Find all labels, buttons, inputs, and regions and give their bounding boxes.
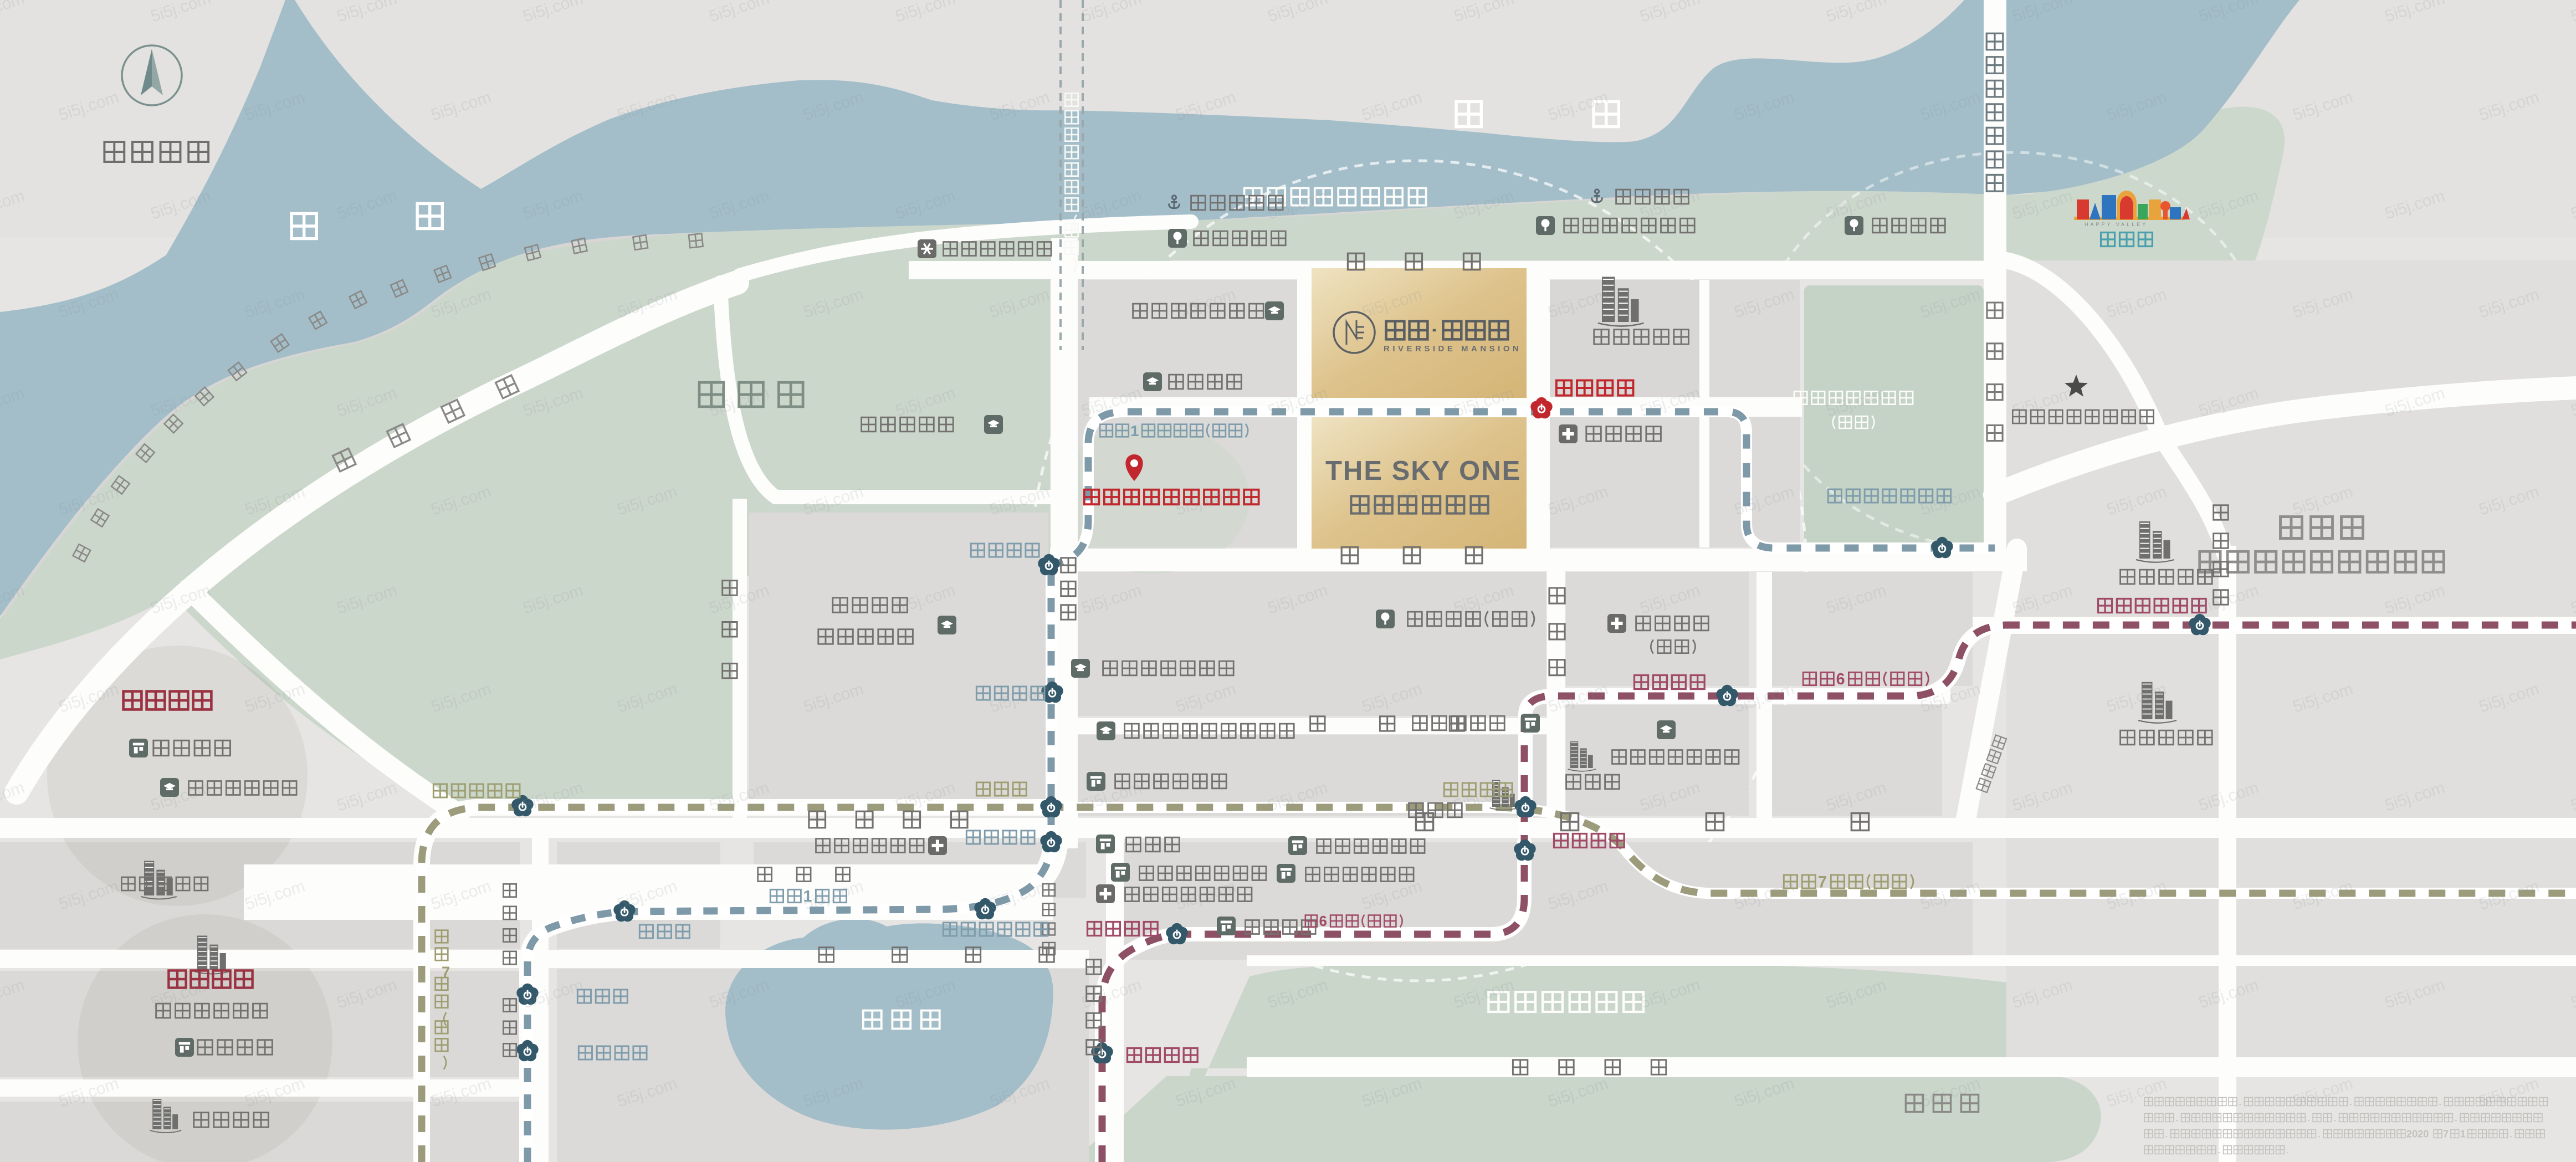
- svg-text:7: 7: [2443, 1129, 2449, 1140]
- svg-text:1: 1: [2460, 1129, 2466, 1140]
- svg-text:THE SKY ONE: THE SKY ONE: [1325, 456, 1521, 486]
- svg-text:6: 6: [1319, 914, 1327, 929]
- svg-text:RIVERSIDE MANSION: RIVERSIDE MANSION: [1384, 344, 1522, 354]
- svg-text:1: 1: [1130, 422, 1139, 439]
- svg-text:HAPPY VALLEY: HAPPY VALLEY: [2085, 222, 2148, 227]
- svg-text:7: 7: [442, 964, 450, 981]
- svg-text:6: 6: [1836, 670, 1845, 688]
- svg-text:7: 7: [1818, 873, 1827, 892]
- svg-text:2020: 2020: [2406, 1129, 2429, 1140]
